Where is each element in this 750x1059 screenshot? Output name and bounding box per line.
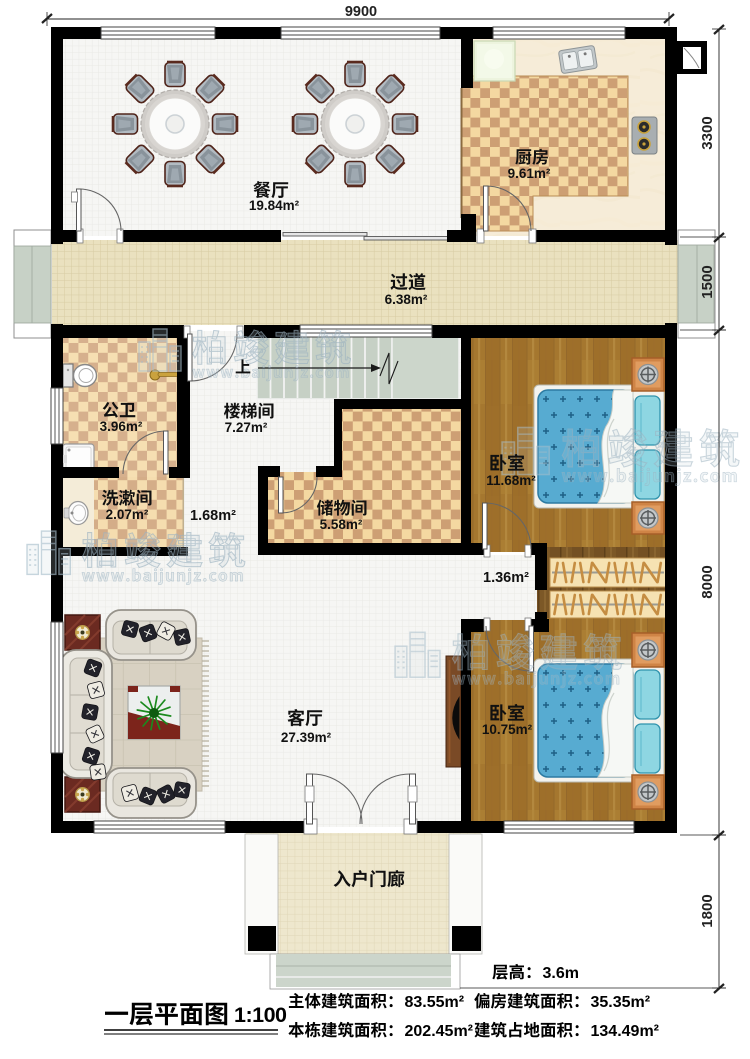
svg-text:1800: 1800 [699, 894, 716, 927]
svg-text:2.07m²: 2.07m² [106, 507, 149, 522]
svg-text:83.55m²: 83.55m² [405, 994, 465, 1011]
svg-text:7.27m²: 7.27m² [225, 420, 268, 435]
svg-text:8000: 8000 [699, 565, 716, 598]
svg-text:35.35m²: 35.35m² [591, 994, 651, 1011]
svg-text:1:100: 1:100 [234, 1003, 287, 1027]
svg-text:11.68m²: 11.68m² [486, 473, 536, 488]
svg-text:9900: 9900 [345, 4, 377, 20]
svg-text:3.96m²: 3.96m² [100, 419, 143, 434]
svg-text:1.36m²: 1.36m² [483, 570, 529, 586]
svg-text:9.61m²: 9.61m² [508, 166, 551, 181]
svg-text:3.6m: 3.6m [543, 965, 579, 982]
svg-text:202.45m²: 202.45m² [405, 1023, 474, 1040]
svg-text:134.49m²: 134.49m² [591, 1023, 660, 1040]
svg-text:27.39m²: 27.39m² [281, 730, 332, 745]
svg-text:6.38m²: 6.38m² [385, 292, 428, 307]
svg-text:3300: 3300 [699, 116, 716, 149]
svg-text:1500: 1500 [699, 265, 716, 298]
svg-text:19.84m²: 19.84m² [249, 198, 300, 213]
svg-text:10.75m²: 10.75m² [482, 722, 533, 737]
svg-text:1.68m²: 1.68m² [190, 508, 236, 524]
svg-text:5.58m²: 5.58m² [320, 517, 363, 532]
